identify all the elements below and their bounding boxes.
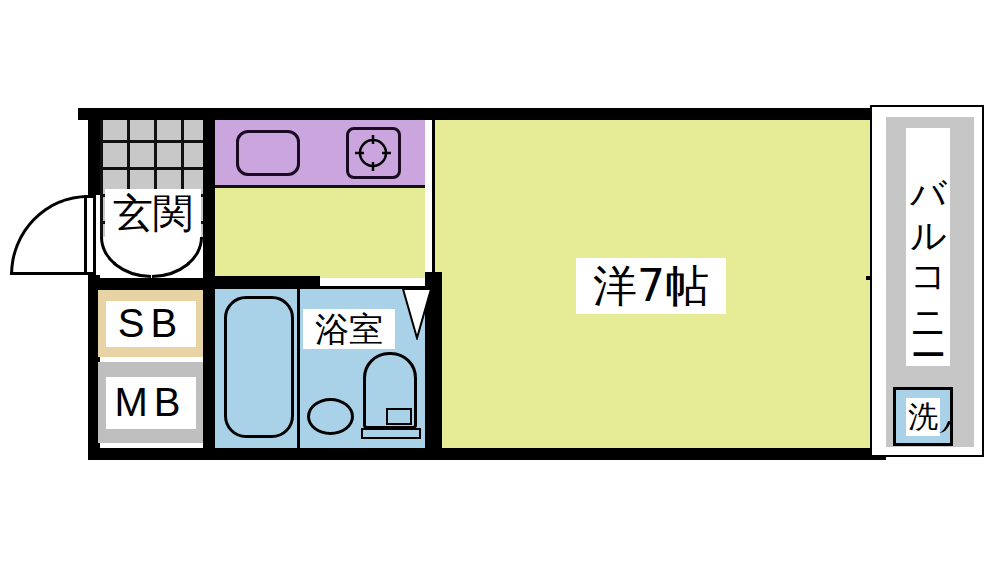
balcony-label: バルコニー	[906, 128, 950, 366]
bathroom-door-swing	[401, 288, 433, 340]
shoe-box: SB	[98, 290, 203, 357]
washing-machine-label: 洗	[906, 398, 940, 436]
bathtub-divider-line	[297, 288, 300, 448]
wall-genkan-bottom	[88, 278, 215, 290]
main-room-label: 洋7帖	[576, 258, 726, 314]
washing-machine-area: 洗	[893, 387, 953, 446]
wall-top	[78, 108, 872, 120]
entrance-door-swing-line	[10, 272, 88, 275]
stove-burner-icon	[353, 133, 393, 173]
kitchen-sink	[236, 130, 300, 176]
floor-plan: バルコニー 洗 SB MB 玄関 浴室 洋7帖	[0, 0, 1000, 562]
toilet-base	[361, 428, 421, 439]
wall-left-upper	[88, 108, 100, 195]
kitchen-mainroom-partition	[425, 120, 435, 272]
bathtub	[224, 296, 294, 438]
entrance-door-leaf	[84, 195, 96, 275]
wall-genkan-kitchen	[203, 120, 215, 278]
toilet-tank-detail	[386, 408, 412, 425]
shoe-box-label: SB	[106, 301, 196, 347]
entrance-door-swing-arc	[10, 195, 88, 275]
toilet-bowl	[307, 398, 354, 435]
bathroom-label: 浴室	[303, 309, 395, 349]
genkan-label: 玄関	[105, 189, 201, 237]
wall-bottom	[88, 448, 886, 460]
wall-sbmb-bathroom	[203, 278, 215, 448]
wall-bathroom-top	[215, 276, 320, 289]
meter-box: MB	[98, 362, 203, 443]
meter-box-label: MB	[106, 377, 196, 429]
